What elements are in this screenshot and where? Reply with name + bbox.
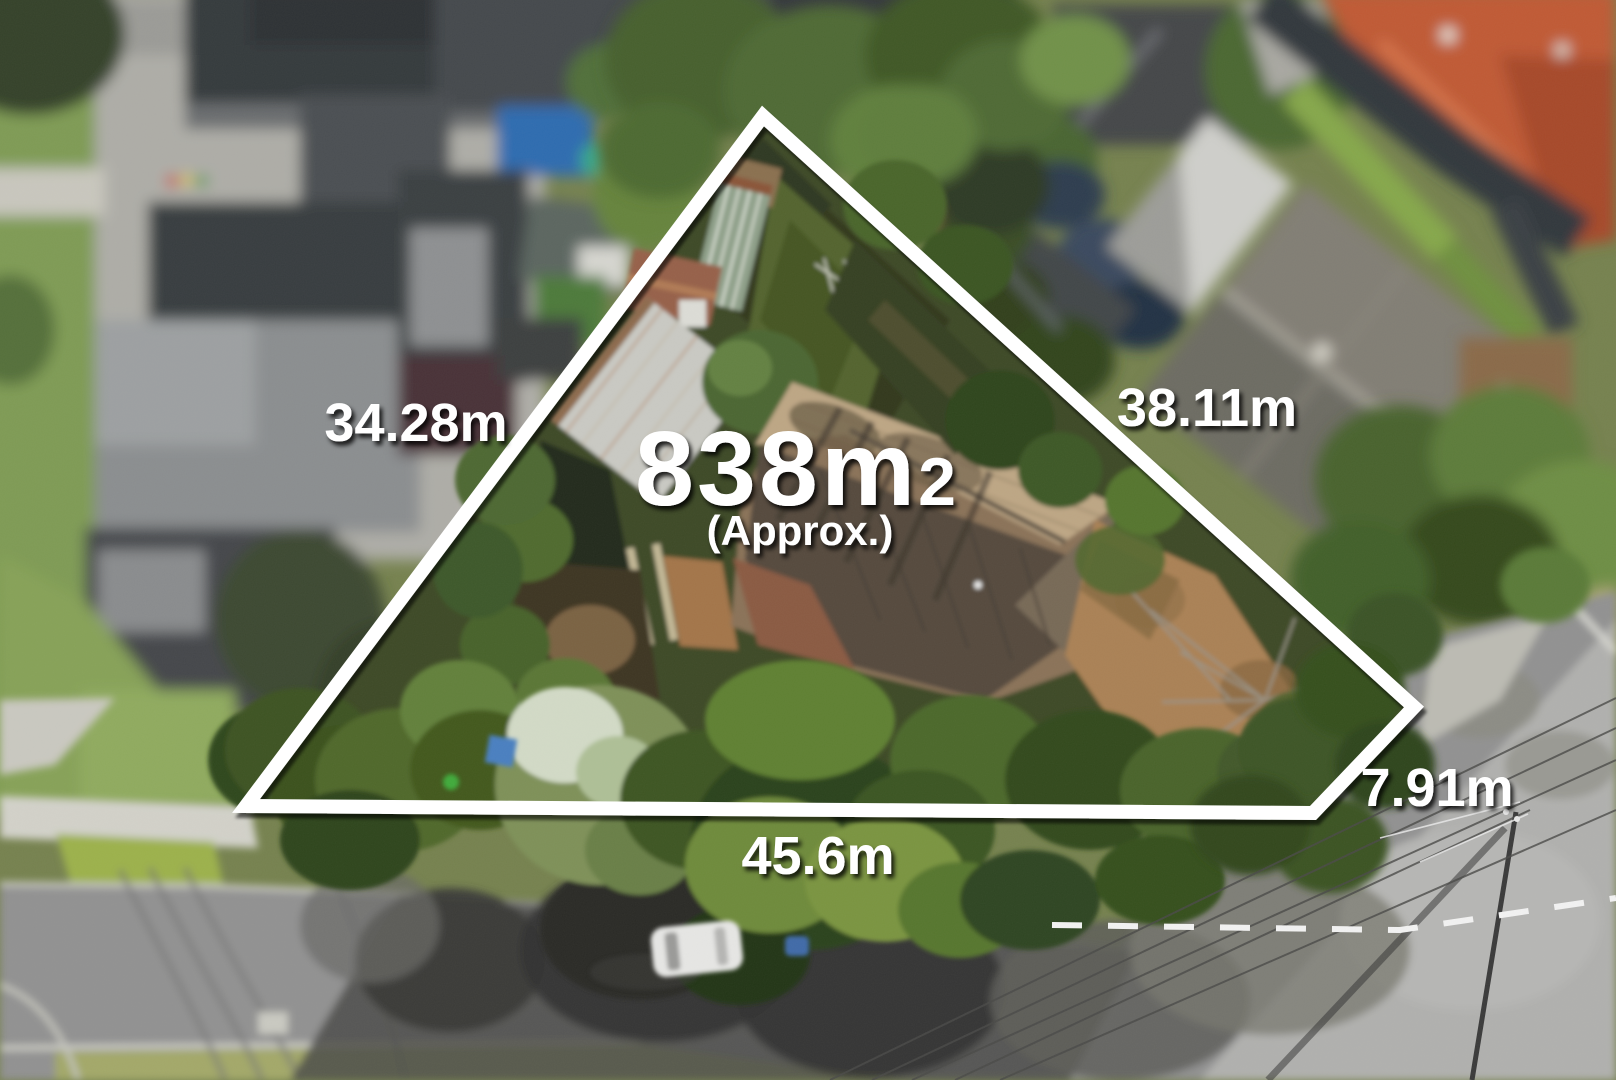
- svg-text:45.6m: 45.6m: [741, 826, 894, 886]
- svg-text:7.91m: 7.91m: [1360, 758, 1513, 818]
- svg-text:(Approx.): (Approx.): [707, 507, 894, 554]
- svg-text:38.11m: 38.11m: [1117, 378, 1297, 438]
- svg-text:34.28m: 34.28m: [324, 393, 507, 453]
